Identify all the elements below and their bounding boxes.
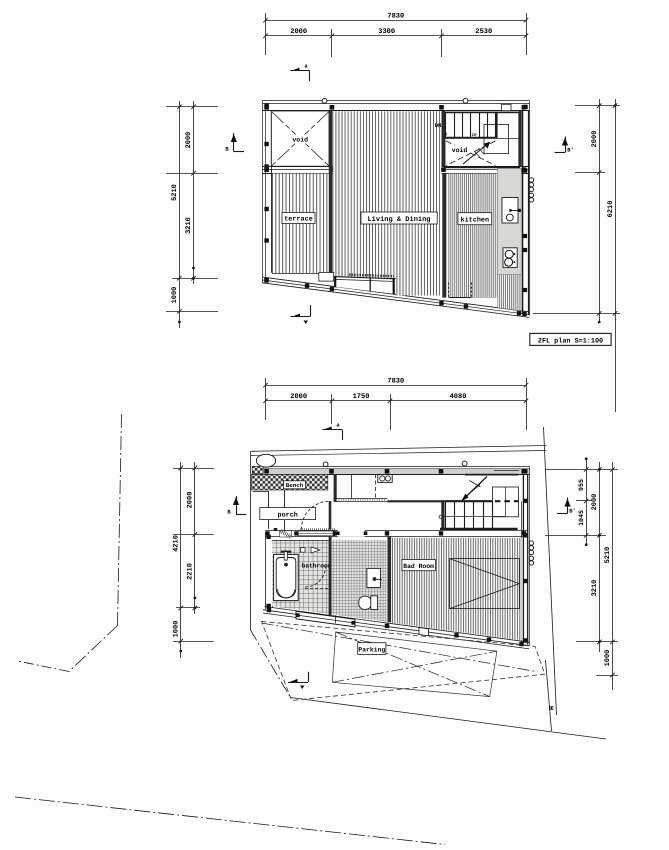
svg-text:Bad Room: Bad Room xyxy=(403,563,434,570)
svg-text:955: 955 xyxy=(578,479,585,491)
svg-text:a: a xyxy=(336,421,340,428)
svg-text:void: void xyxy=(452,147,468,154)
svg-text:H: H xyxy=(546,706,554,710)
svg-text:B: B xyxy=(227,509,231,516)
svg-text:B': B' xyxy=(569,508,576,515)
svg-text:2000: 2000 xyxy=(185,132,193,149)
svg-text:void: void xyxy=(292,137,308,144)
svg-text:2FL plan S=1:100: 2FL plan S=1:100 xyxy=(538,337,603,345)
svg-text:2210: 2210 xyxy=(187,563,195,580)
svg-text:7830: 7830 xyxy=(387,378,404,386)
svg-text:1000: 1000 xyxy=(171,287,179,304)
svg-text:1045: 1045 xyxy=(578,510,585,526)
svg-text:7830: 7830 xyxy=(387,13,404,21)
svg-text:Parking: Parking xyxy=(358,646,385,653)
svg-text:kitchen: kitchen xyxy=(461,216,490,224)
svg-text:1000: 1000 xyxy=(604,650,612,667)
svg-text:1750: 1750 xyxy=(353,393,370,401)
svg-text:2530: 2530 xyxy=(475,28,492,36)
svg-text:6210: 6210 xyxy=(607,201,615,218)
svg-text:a: a xyxy=(304,63,308,70)
svg-text:2000: 2000 xyxy=(290,393,307,401)
svg-text:terrace: terrace xyxy=(284,216,313,224)
svg-text:2000: 2000 xyxy=(591,131,599,148)
svg-text:B: B xyxy=(225,146,229,153)
svg-text:4080: 4080 xyxy=(450,393,467,401)
svg-text:3210: 3210 xyxy=(185,217,193,234)
svg-text:2000: 2000 xyxy=(591,494,599,511)
svg-text:3300: 3300 xyxy=(378,28,395,36)
svg-text:3210: 3210 xyxy=(591,580,599,597)
svg-text:porch: porch xyxy=(277,511,297,519)
svg-text:2000: 2000 xyxy=(187,492,195,509)
svg-text:5210: 5210 xyxy=(604,547,612,564)
svg-text:2000: 2000 xyxy=(290,28,307,36)
svg-text:Living & Dining: Living & Dining xyxy=(367,215,430,224)
svg-text:10: 10 xyxy=(472,133,478,138)
svg-text:B': B' xyxy=(567,147,574,154)
svg-text:DN: DN xyxy=(435,122,442,129)
svg-text:4210: 4210 xyxy=(173,535,181,552)
svg-text:5210: 5210 xyxy=(171,184,179,201)
svg-text:1000: 1000 xyxy=(173,621,181,638)
svg-text:Bench: Bench xyxy=(286,482,304,489)
svg-text:bathroom: bathroom xyxy=(302,563,332,570)
